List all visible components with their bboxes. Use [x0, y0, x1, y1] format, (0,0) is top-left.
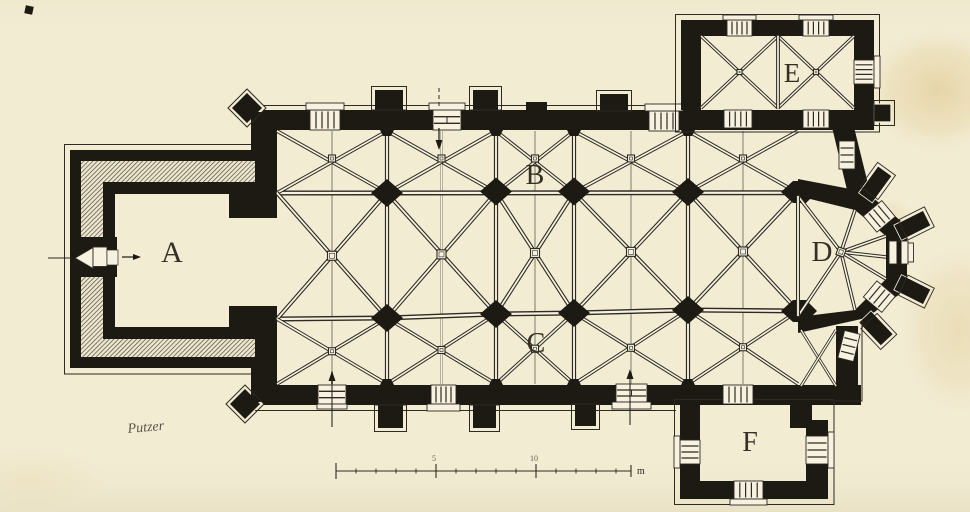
svg-text:C: C — [527, 328, 546, 359]
svg-text:5: 5 — [432, 454, 436, 463]
svg-text:m: m — [637, 466, 645, 477]
svg-text:D: D — [812, 236, 833, 268]
svg-text:E: E — [784, 58, 801, 88]
svg-text:10: 10 — [530, 454, 538, 463]
svg-text:B: B — [526, 160, 545, 191]
svg-text:F: F — [742, 427, 758, 458]
svg-text:A: A — [161, 236, 183, 269]
